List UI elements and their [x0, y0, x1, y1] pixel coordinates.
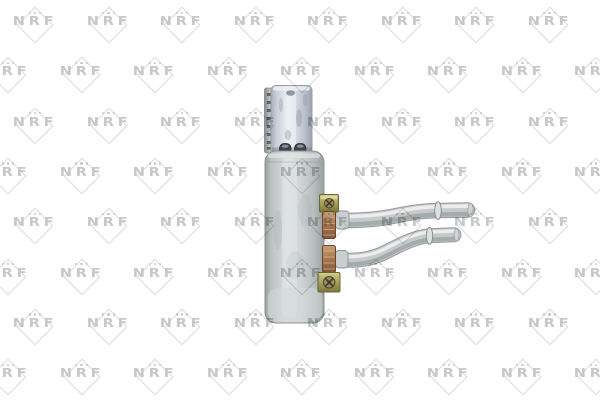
nrf-dots-icon [79, 112, 139, 114]
nrf-watermark: NRF [520, 304, 580, 350]
nrf-watermark-text: NRF [45, 366, 118, 380]
nrf-watermark-text: NRF [145, 215, 218, 229]
nrf-dots-icon [299, 12, 359, 14]
nrf-diamond-icon [137, 158, 174, 195]
nrf-diamond-icon [210, 158, 247, 195]
nrf-watermark-text: NRF [486, 165, 559, 179]
nrf-dots-icon [152, 112, 212, 114]
nrf-watermark-text: NRF [118, 366, 191, 380]
nrf-dots-icon [566, 263, 600, 265]
nrf-watermark: NRF [346, 354, 406, 400]
nrf-watermark-text: NRF [486, 266, 559, 280]
nrf-diamond-icon [578, 158, 600, 195]
nrf-watermark: NRF [566, 254, 600, 300]
nrf-watermark: NRF [0, 354, 38, 400]
nrf-diamond-icon [504, 158, 541, 195]
nrf-diamond-icon [164, 107, 201, 144]
nrf-dots-icon [272, 62, 332, 64]
nrf-diamond-icon [531, 7, 568, 44]
nrf-diamond-icon [237, 7, 274, 44]
nrf-dots-icon [226, 12, 286, 14]
nrf-watermark-text: NRF [72, 14, 145, 28]
nrf-diamond-icon [17, 107, 54, 144]
nrf-diamond-icon [137, 57, 174, 94]
nrf-watermark: NRF [373, 2, 433, 48]
nrf-watermark-text: NRF [513, 316, 586, 330]
nrf-dots-icon [125, 263, 185, 265]
nrf-diamond-icon [458, 7, 495, 44]
nrf-watermark: NRF [566, 354, 600, 400]
nrf-dots-icon [152, 12, 212, 14]
nrf-watermark-text: NRF [513, 115, 586, 129]
nrf-dots-icon [0, 162, 38, 164]
clamp-screw [325, 199, 334, 208]
nrf-watermark: NRF [125, 354, 185, 400]
nrf-watermark: NRF [5, 203, 65, 249]
nrf-watermark: NRF [0, 254, 38, 300]
nrf-watermark: NRF [125, 52, 185, 98]
nrf-watermark: NRF [0, 52, 38, 98]
nrf-dots-icon [346, 62, 406, 64]
nrf-diamond-icon [0, 57, 26, 94]
nrf-diamond-icon [63, 258, 100, 295]
nrf-watermark: NRF [446, 2, 506, 48]
nrf-watermark: NRF [5, 304, 65, 350]
nrf-watermark: NRF [79, 2, 139, 48]
nrf-diamond-icon [17, 208, 54, 245]
nrf-diamond-icon [0, 359, 26, 396]
nrf-dots-icon [446, 12, 506, 14]
nrf-diamond-icon [90, 208, 127, 245]
nrf-watermark: NRF [493, 354, 553, 400]
nrf-diamond-icon [357, 359, 394, 396]
nrf-watermark: NRF [125, 153, 185, 199]
nrf-diamond-icon [90, 7, 127, 44]
nrf-dots-icon [566, 62, 600, 64]
nrf-watermark: NRF [493, 153, 553, 199]
nrf-dots-icon [0, 364, 38, 366]
nrf-watermark: NRF [152, 103, 212, 149]
nrf-dots-icon [79, 12, 139, 14]
nrf-watermark-text: NRF [366, 14, 439, 28]
pipe-sleeve [336, 211, 350, 229]
nrf-watermark-text: NRF [0, 14, 72, 28]
nrf-diamond-icon [284, 359, 321, 396]
nrf-dots-icon [566, 162, 600, 164]
nrf-dots-icon [520, 112, 580, 114]
nrf-diamond-icon [504, 57, 541, 94]
nrf-watermark-text: NRF [439, 14, 512, 28]
nrf-diamond-icon [164, 7, 201, 44]
nrf-dots-icon [0, 263, 38, 265]
nrf-watermark: NRF [152, 203, 212, 249]
nrf-dots-icon [52, 62, 112, 64]
nrf-dots-icon [520, 12, 580, 14]
nrf-watermark-text: NRF [72, 115, 145, 129]
nrf-watermark: NRF [5, 2, 65, 48]
nrf-watermark: NRF [5, 103, 65, 149]
heater-core-product-image [250, 78, 485, 330]
nrf-diamond-icon [384, 7, 421, 44]
pipe-bead-ring [435, 202, 442, 220]
nrf-diamond-icon [164, 308, 201, 345]
pipe-bead-ring [426, 228, 432, 245]
nrf-watermark: NRF [0, 153, 38, 199]
nrf-dots-icon [5, 213, 65, 215]
nrf-watermark: NRF [52, 254, 112, 300]
nrf-dots-icon [79, 213, 139, 215]
nrf-diamond-icon [311, 7, 348, 44]
product-image-canvas: NRFNRFNRFNRFNRFNRFNRFNRFNRFNRFNRFNRFNRFN… [0, 0, 600, 400]
heater-core-body [265, 151, 324, 323]
nrf-watermark-text: NRF [145, 115, 218, 129]
nrf-watermark-text: NRF [265, 64, 338, 78]
nrf-watermark: NRF [226, 2, 286, 48]
nrf-dots-icon [346, 364, 406, 366]
nrf-watermark: NRF [152, 304, 212, 350]
nrf-dots-icon [152, 313, 212, 315]
nrf-diamond-icon [504, 359, 541, 396]
nrf-diamond-icon [63, 158, 100, 195]
nrf-diamond-icon [137, 359, 174, 396]
pipe-end-cap [454, 229, 459, 242]
nrf-dots-icon [52, 263, 112, 265]
nrf-dots-icon [566, 364, 600, 366]
nrf-watermark-text: NRF [486, 366, 559, 380]
nrf-watermark: NRF [520, 203, 580, 249]
nrf-diamond-icon [164, 208, 201, 245]
nrf-watermark: NRF [419, 354, 479, 400]
nrf-dots-icon [0, 62, 38, 64]
nrf-watermark-text: NRF [559, 64, 600, 78]
outlet-pipe-lower [330, 228, 459, 269]
nrf-watermark-text: NRF [118, 165, 191, 179]
nrf-dots-icon [493, 162, 553, 164]
nrf-watermark: NRF [152, 2, 212, 48]
nrf-watermark-text: NRF [219, 14, 292, 28]
nrf-dots-icon [5, 112, 65, 114]
nrf-watermark-text: NRF [145, 14, 218, 28]
nrf-watermark: NRF [493, 52, 553, 98]
nrf-watermark: NRF [52, 153, 112, 199]
nrf-dots-icon [5, 12, 65, 14]
nrf-watermark-text: NRF [192, 366, 265, 380]
nrf-watermark: NRF [566, 52, 600, 98]
nrf-dots-icon [493, 364, 553, 366]
nrf-watermark-text: NRF [559, 266, 600, 280]
nrf-watermark-text: NRF [0, 316, 72, 330]
nrf-watermark-text: NRF [0, 165, 45, 179]
pipe-sleeve [336, 251, 349, 269]
nrf-watermark-text: NRF [412, 366, 485, 380]
nrf-watermark-text: NRF [0, 366, 45, 380]
nrf-dots-icon [52, 162, 112, 164]
nrf-watermark: NRF [52, 354, 112, 400]
nrf-dots-icon [419, 364, 479, 366]
nrf-dots-icon [125, 62, 185, 64]
nrf-watermark-text: NRF [72, 215, 145, 229]
nrf-watermark-text: NRF [292, 14, 365, 28]
nrf-watermark-text: NRF [559, 165, 600, 179]
nrf-dots-icon [520, 313, 580, 315]
nrf-diamond-icon [210, 258, 247, 295]
nrf-watermark-text: NRF [0, 115, 72, 129]
nrf-dots-icon [79, 313, 139, 315]
nrf-dots-icon [373, 12, 433, 14]
nrf-watermark-text: NRF [118, 64, 191, 78]
nrf-watermark-text: NRF [145, 316, 218, 330]
pipe-end-cap [468, 203, 473, 217]
nrf-watermark: NRF [79, 304, 139, 350]
nrf-watermark: NRF [566, 153, 600, 199]
nrf-watermark: NRF [493, 254, 553, 300]
nrf-diamond-icon [504, 258, 541, 295]
nrf-diamond-icon [531, 308, 568, 345]
nrf-diamond-icon [210, 57, 247, 94]
nrf-dots-icon [199, 364, 259, 366]
nrf-diamond-icon [137, 258, 174, 295]
nrf-watermark-text: NRF [513, 14, 586, 28]
nrf-diamond-icon [0, 158, 26, 195]
nrf-diamond-icon [17, 308, 54, 345]
nrf-diamond-icon [578, 359, 600, 396]
nrf-watermark-text: NRF [339, 366, 412, 380]
nrf-dots-icon [272, 364, 332, 366]
nrf-diamond-icon [90, 308, 127, 345]
nrf-watermark: NRF [79, 203, 139, 249]
nrf-watermark-text: NRF [0, 266, 45, 280]
nrf-watermark: NRF [520, 103, 580, 149]
nrf-watermark-text: NRF [265, 366, 338, 380]
nrf-diamond-icon [90, 107, 127, 144]
nrf-diamond-icon [431, 359, 468, 396]
nrf-dots-icon [125, 162, 185, 164]
nrf-dots-icon [52, 364, 112, 366]
nrf-watermark: NRF [125, 254, 185, 300]
pipe-clamp-upper [320, 195, 339, 239]
nrf-diamond-icon [0, 258, 26, 295]
nrf-dots-icon [493, 263, 553, 265]
nrf-watermark-text: NRF [339, 64, 412, 78]
nrf-watermark: NRF [299, 2, 359, 48]
nrf-diamond-icon [578, 258, 600, 295]
nrf-watermark-text: NRF [0, 64, 45, 78]
nrf-watermark-text: NRF [72, 316, 145, 330]
nrf-diamond-icon [531, 208, 568, 245]
nrf-watermark-text: NRF [45, 266, 118, 280]
nrf-dots-icon [419, 62, 479, 64]
nrf-watermark: NRF [272, 354, 332, 400]
nrf-diamond-icon [17, 7, 54, 44]
nrf-watermark: NRF [79, 103, 139, 149]
nrf-watermark-text: NRF [559, 366, 600, 380]
nrf-watermark-text: NRF [45, 64, 118, 78]
clamp-screw [324, 277, 335, 288]
nrf-dots-icon [152, 213, 212, 215]
nrf-dots-icon [5, 313, 65, 315]
nrf-diamond-icon [210, 359, 247, 396]
nrf-diamond-icon [578, 57, 600, 94]
nrf-dots-icon [199, 62, 259, 64]
nrf-diamond-icon [63, 57, 100, 94]
nrf-watermark-text: NRF [118, 266, 191, 280]
heater-core-top-tank [271, 86, 312, 156]
nrf-diamond-icon [63, 359, 100, 396]
nrf-watermark-text: NRF [192, 64, 265, 78]
inlet-pipe-upper [330, 202, 473, 229]
nrf-watermark-text: NRF [0, 215, 72, 229]
nrf-dots-icon [125, 364, 185, 366]
nrf-watermark-text: NRF [45, 165, 118, 179]
nrf-watermark: NRF [199, 354, 259, 400]
nrf-diamond-icon [531, 107, 568, 144]
nrf-watermark-text: NRF [412, 64, 485, 78]
nrf-watermark: NRF [52, 52, 112, 98]
nrf-watermark: NRF [520, 2, 580, 48]
nrf-watermark-text: NRF [513, 215, 586, 229]
nrf-dots-icon [520, 213, 580, 215]
nrf-dots-icon [493, 62, 553, 64]
nrf-watermark-text: NRF [486, 64, 559, 78]
